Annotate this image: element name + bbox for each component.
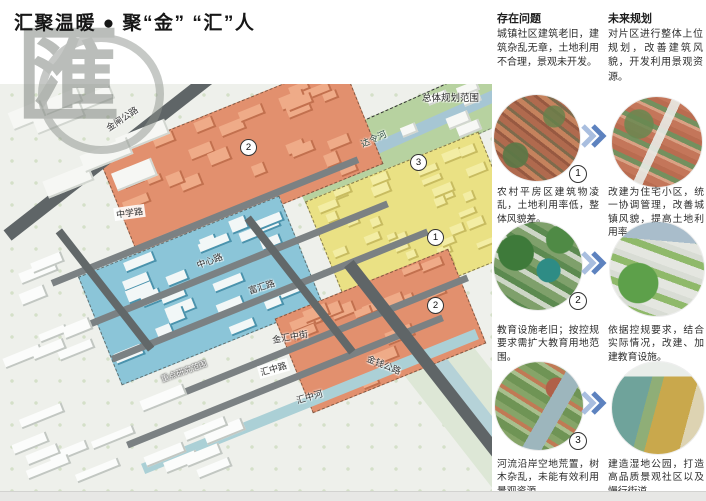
building-block (333, 245, 350, 259)
row-badge-2: 2 (569, 292, 587, 310)
comparison-row-3: 3 (492, 362, 706, 457)
photo-plan-1 (612, 97, 702, 187)
building-block (29, 95, 74, 125)
building-block (11, 432, 49, 456)
building-block (48, 440, 89, 464)
page-title: 汇聚温暖 ● 聚“金” “汇”人 (14, 8, 255, 35)
map-badge-zone1: 1 (427, 229, 444, 246)
problems-header: 存在问题 (497, 10, 541, 26)
analysis-panel: 存在问题 未来规划 城镇社区建筑老旧，建筑杂乱无章，土地利用不合理，景观未开发。… (492, 0, 706, 500)
row-badge-3: 3 (569, 432, 587, 450)
problem-text-1: 农村平房区建筑物凌乱，土地利用率低，整体风貌差。 (497, 186, 599, 226)
building-block (420, 255, 445, 273)
map-badge-zone2-lower: 2 (427, 297, 444, 314)
building-block (25, 443, 61, 466)
building-block (2, 344, 43, 369)
label-overall-scope: 总体规划范围 (422, 90, 479, 104)
building-block (462, 189, 477, 203)
building-block (8, 100, 47, 131)
building-block (39, 324, 70, 344)
photo-problem-1 (494, 95, 580, 181)
building-block (57, 338, 95, 361)
building-block (33, 102, 85, 135)
plans-intro: 对片区进行整体上位规划，改善建筑风貌，开发利用景观资源。 (608, 28, 703, 85)
building-block (229, 317, 258, 336)
comparison-row-1: 1 (492, 95, 706, 190)
building-block (19, 402, 65, 428)
photo-plan-3 (612, 362, 704, 454)
building-block (364, 231, 383, 246)
problems-intro: 城镇社区建筑老旧，建筑杂乱无章，土地利用不合理，景观未开发。 (497, 28, 599, 71)
building-block (237, 103, 266, 124)
photo-plan-2 (610, 222, 704, 316)
building-block (370, 216, 384, 229)
building-block (193, 116, 216, 134)
row-badge-1: 1 (569, 165, 587, 183)
building-block (31, 338, 66, 361)
building-block (466, 215, 487, 231)
building-block (75, 457, 121, 482)
map-badge-zone2-upper: 2 (240, 139, 257, 156)
chevron-right-icon (580, 250, 608, 276)
building-block (147, 173, 164, 186)
problem-text-2: 教育设施老旧；按控规要求需扩大教育用地范围。 (497, 324, 599, 364)
building-block (459, 143, 479, 159)
building-block (476, 236, 492, 250)
chevron-right-icon (580, 390, 608, 416)
building-block (122, 171, 144, 189)
building-block (42, 87, 84, 116)
building-block (327, 133, 353, 152)
building-block (466, 162, 489, 179)
master-plan-map: 金闸公路 中学路 中心路 富汇路 金汇中街 汇中路 汇中河 金钱公路 达令河 总… (0, 84, 492, 492)
building-block (30, 251, 65, 273)
comparison-row-2: 2 (492, 222, 706, 317)
building-block (26, 454, 72, 480)
building-block (152, 131, 176, 149)
plans-header: 未来规划 (608, 10, 652, 26)
building-block (406, 249, 419, 261)
plan-text-2: 依据控规要求，结合实际情况，改建、加建教育设施。 (608, 324, 704, 364)
building-block (196, 456, 233, 479)
map-badge-zone3: 3 (410, 154, 427, 171)
chevron-right-icon (580, 123, 608, 149)
building-block (250, 162, 267, 178)
building-block (73, 85, 114, 113)
building-block (18, 284, 48, 306)
